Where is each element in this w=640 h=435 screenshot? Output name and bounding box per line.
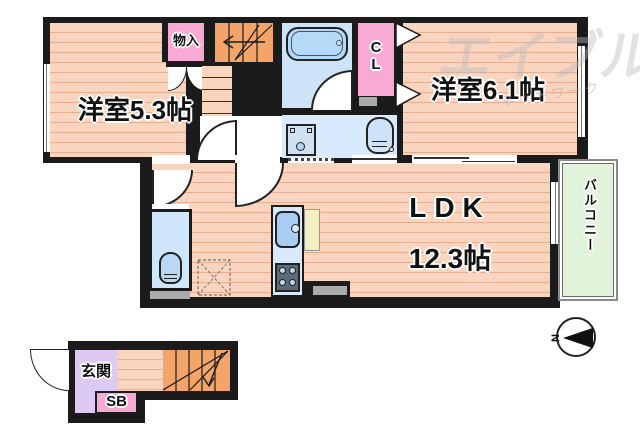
toilet-icon: [159, 252, 182, 284]
washbasin-icon: [286, 124, 316, 156]
floorplan: N 洋室5.3帖 洋室6.1帖 LDK 12.3帖 物入 CL バルコニー 玄関…: [0, 0, 640, 435]
storage-label: 物入: [168, 30, 204, 49]
stairs-entrance: [163, 350, 230, 391]
entrance-door-icon: [30, 349, 69, 391]
toilet-washroom-dot-icon: [389, 147, 394, 152]
closet-threshold: [359, 97, 377, 106]
compass-needle-icon: [563, 326, 593, 350]
closet-label: CL: [368, 40, 384, 73]
watermark-brand: エイブル: [433, 12, 640, 91]
stairs-upper: [215, 23, 273, 62]
washroom-threshold-dots: [288, 158, 334, 163]
opening-bedroom1-door: [152, 155, 190, 164]
balcony-label: バルコニー: [580, 178, 599, 253]
refrigerator-space-icon: [197, 259, 231, 296]
stairs-entrance-treads-icon: [163, 350, 230, 391]
entrance-floor: [117, 350, 163, 391]
bathtub-drain-icon: [336, 40, 342, 46]
entrance-label: 玄関: [75, 360, 117, 381]
kitchen-side-counter: [304, 209, 320, 251]
compass-north-label: N: [550, 334, 562, 342]
kitchen-faucet-icon: [291, 224, 300, 233]
ldk-size-label: 12.3帖: [385, 237, 515, 277]
toilet-room-threshold: [150, 291, 190, 299]
opening-washroom: [352, 155, 397, 164]
stove-icon: [275, 263, 300, 292]
kitchen-threshold: [313, 286, 347, 295]
ldk-label: LDK: [390, 192, 510, 224]
sliding-door-bedroom2-icon: [412, 155, 517, 164]
compass: N: [556, 317, 596, 357]
window-bedroom1-left: [44, 64, 50, 152]
shoebox-label: SB: [95, 393, 138, 410]
bedroom1-label: 洋室5.3帖: [60, 90, 210, 127]
stairs-upper-treads-icon: [215, 23, 273, 62]
